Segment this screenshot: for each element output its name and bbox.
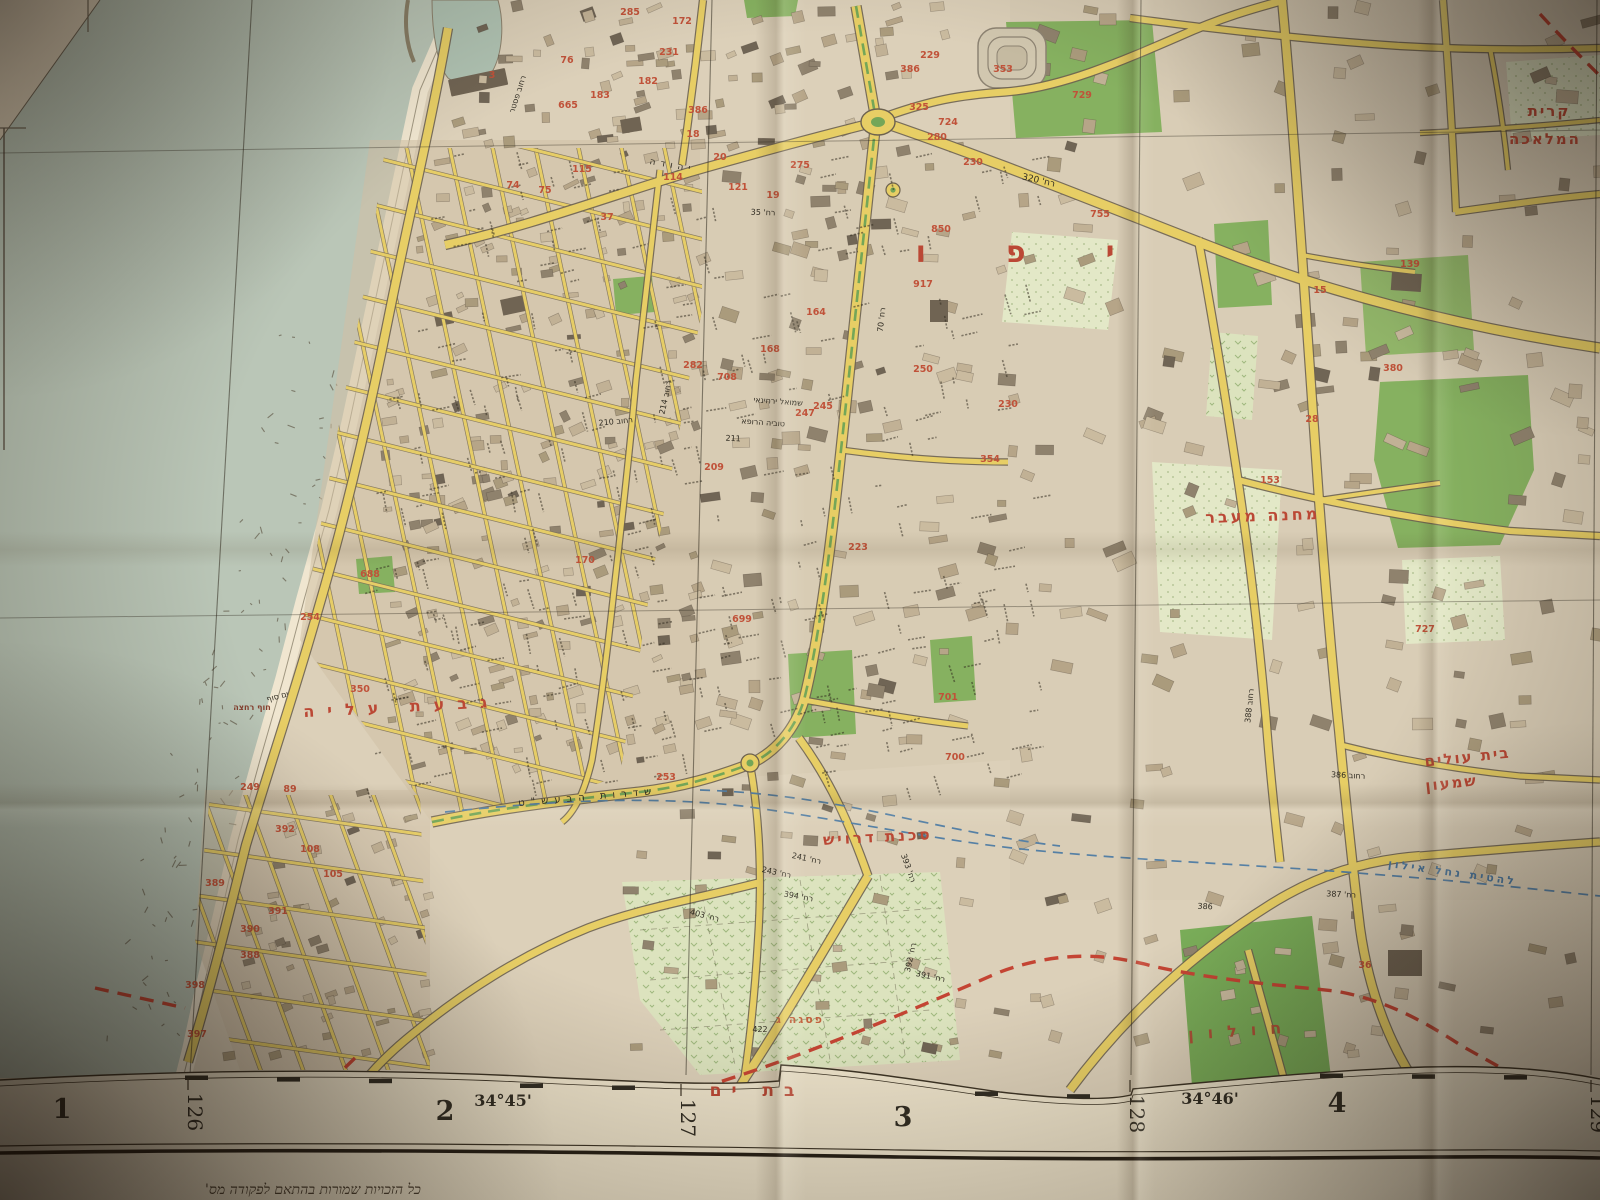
block-number: 164 [806, 307, 826, 318]
region-label: המלאכה [1509, 130, 1581, 148]
block-number: 353 [993, 64, 1013, 75]
block-number: 183 [590, 90, 610, 101]
block-number: 325 [909, 102, 929, 113]
block-number: 108 [300, 844, 320, 855]
street-label: רח' 387 [1326, 889, 1356, 900]
block-number: 139 [1400, 259, 1420, 270]
block-number: 229 [920, 50, 940, 61]
block-number: 36 [1358, 960, 1372, 971]
block-number: 114 [663, 172, 683, 183]
block-number: 285 [620, 7, 640, 18]
block-number: 700 [945, 752, 965, 763]
block-number: 397 [187, 1029, 207, 1040]
block-number: 253 [656, 772, 676, 783]
map-photo: 3285172231182183665763861820114115757437… [0, 0, 1600, 1200]
block-number: 729 [1072, 90, 1092, 101]
map-canvas: 3285172231182183665763861820114115757437… [0, 0, 1600, 1200]
block-number: 398 [185, 980, 205, 991]
park [744, 0, 798, 18]
block-number: 386 [688, 105, 708, 116]
park [1180, 916, 1332, 1086]
block-number: 231 [659, 47, 679, 58]
block-number: 28 [1305, 414, 1319, 425]
block-number: 105 [323, 869, 343, 880]
block-number: 247 [795, 408, 815, 419]
block-number: 350 [350, 684, 370, 695]
region-label: קרית [1528, 102, 1571, 120]
block-number: 170 [575, 555, 595, 566]
block-number: 389 [205, 878, 225, 889]
margin-easting: 129 [1586, 1095, 1600, 1133]
block-number: 354 [980, 454, 1000, 465]
block-number: 168 [760, 344, 780, 355]
block-number: 380 [1383, 363, 1403, 374]
street-label: 211 [725, 434, 741, 444]
block-number: 172 [672, 16, 692, 27]
block-number: 708 [717, 372, 737, 383]
block-number: 386 [900, 64, 920, 75]
street-label: 386 [1197, 902, 1213, 912]
block-number: 182 [638, 76, 658, 87]
margin-section-number: 2 [436, 1096, 455, 1127]
block-number: 249 [240, 782, 260, 793]
block-number: 724 [938, 117, 958, 128]
block-number: 917 [913, 279, 933, 290]
margin-longitude: 34°46' [1181, 1089, 1238, 1108]
margin-easting: 127 [676, 1099, 700, 1137]
block-number: 153 [1260, 475, 1280, 486]
margin-city-label: בת ים [710, 1081, 805, 1101]
block-number: 701 [938, 692, 958, 703]
block-number: 254 [300, 612, 320, 623]
block-number: 391 [268, 906, 288, 917]
region-label: חוף רחצה [233, 703, 270, 712]
block-number: 230 [998, 399, 1018, 410]
block-number: 388 [240, 950, 260, 961]
block-number: 688 [360, 569, 380, 580]
block-number: 392 [275, 824, 295, 835]
street-label: רחוב 386 [1331, 770, 1366, 781]
region-label: מחנה מעבר [1205, 504, 1321, 527]
block-number: 18 [686, 129, 700, 140]
block-number: 850 [931, 224, 951, 235]
block-number: 275 [790, 160, 810, 171]
block-number: 755 [1090, 209, 1110, 220]
block-number: 89 [283, 784, 296, 795]
margin-section-number: 3 [894, 1102, 913, 1133]
block-number: 282 [683, 360, 703, 371]
block-number: 665 [558, 100, 578, 111]
block-number: 3 [489, 70, 496, 81]
block-number: 250 [913, 364, 933, 375]
region-label: יפו [916, 235, 1195, 270]
block-number: 390 [240, 924, 260, 935]
margin-easting: 126 [183, 1093, 207, 1131]
block-number: 74 [506, 180, 520, 191]
street-label: רח' 35 [751, 208, 776, 218]
margin-easting: 128 [1125, 1095, 1149, 1133]
block-number: 121 [728, 182, 748, 193]
block-number: 699 [732, 614, 752, 625]
block-number: 245 [813, 401, 833, 412]
street-label: 422 [752, 1025, 767, 1034]
block-number: 75 [538, 185, 551, 196]
block-number: 223 [848, 542, 868, 553]
margin-section-number: 4 [1328, 1088, 1347, 1119]
block-number: 280 [927, 132, 947, 143]
margin-longitude: 34°45' [474, 1091, 531, 1110]
region-label: פסגה ג [776, 1013, 824, 1026]
block-number: 19 [766, 190, 779, 201]
block-number: 230 [963, 157, 983, 168]
block-number: 15 [1313, 285, 1326, 296]
block-number: 727 [1415, 624, 1435, 635]
block-number: 20 [713, 152, 727, 163]
margin-section-number: 1 [53, 1094, 72, 1125]
copyright-text: כל הזכויות שמורות בהתאם לפקודה מס' [205, 1182, 805, 1199]
block-number: 115 [572, 164, 592, 175]
block-number: 76 [560, 55, 574, 66]
block-number: 209 [704, 462, 724, 473]
block-number: 37 [600, 212, 613, 223]
